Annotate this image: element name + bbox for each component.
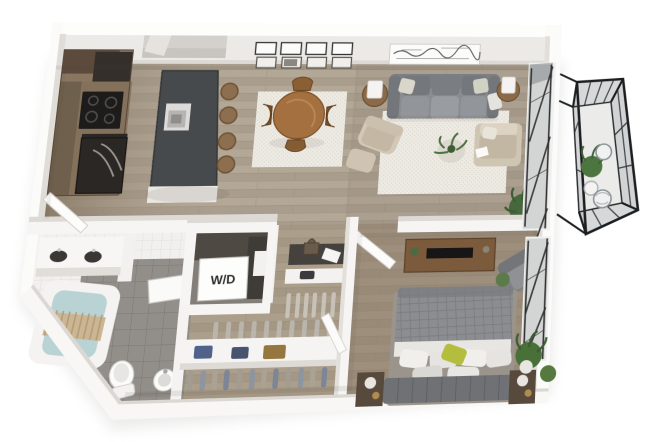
svg-text:W/D: W/D [210,272,236,288]
